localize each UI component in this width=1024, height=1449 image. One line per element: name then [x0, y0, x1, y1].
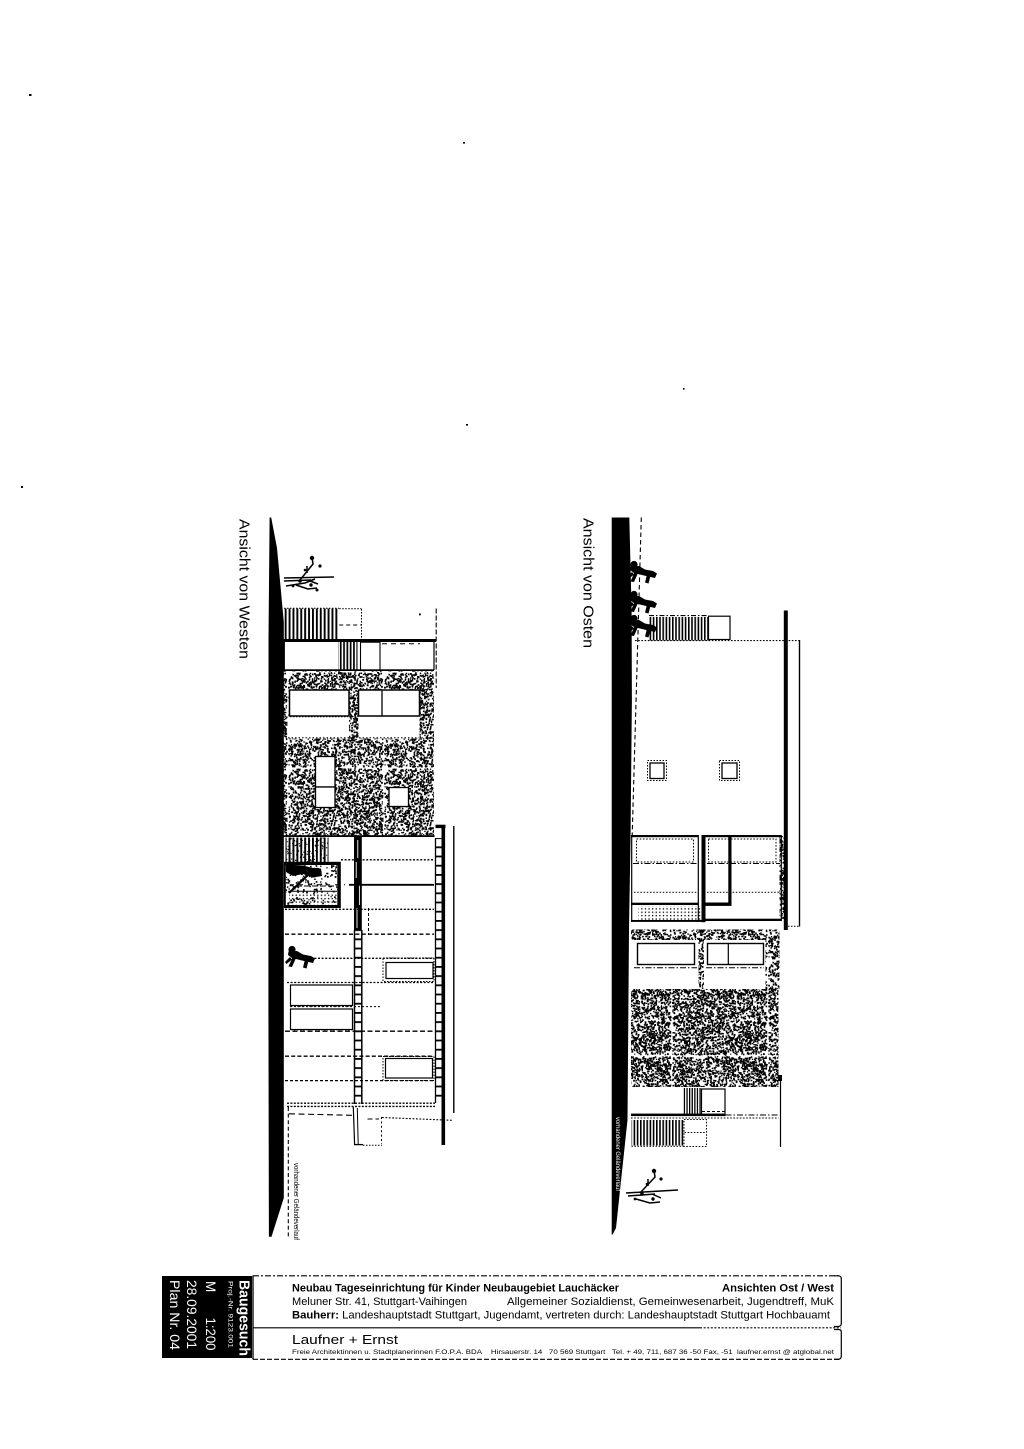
- svg-text:Proj.-Nr. 9123.001: Proj.-Nr. 9123.001: [227, 1281, 234, 1348]
- svg-text:Allgemeiner Sozialdienst, Geme: Allgemeiner Sozialdienst, Gemeinwesenarb…: [507, 1296, 834, 1308]
- svg-text:Meluner Str. 41, Stuttgart-Vai: Meluner Str. 41, Stuttgart-Vaihingen: [292, 1296, 467, 1308]
- svg-text:Ansichten Ost / West: Ansichten Ost / West: [722, 1283, 834, 1295]
- svg-text:vorhandener Geländeverlauf: vorhandener Geländeverlauf: [292, 1163, 299, 1240]
- svg-text:Plan Nr. 04: Plan Nr. 04: [167, 1280, 182, 1351]
- svg-text:Neubau Tageseinrichtung für Ki: Neubau Tageseinrichtung für Kinder Neuba…: [292, 1283, 619, 1295]
- svg-text:Baugesuch: Baugesuch: [235, 1280, 252, 1356]
- svg-text:28.09.2001: 28.09.2001: [184, 1280, 199, 1349]
- svg-text:Freie Architektinnen u. Stadtp: Freie Architektinnen u. Stadtplanerinnen…: [292, 1349, 834, 1356]
- svg-text:Ansicht von Osten: Ansicht von Osten: [580, 518, 597, 648]
- svg-text:Ansicht von Westen: Ansicht von Westen: [236, 519, 253, 659]
- svg-text:vorhandener Geländeverlauf: vorhandener Geländeverlauf: [614, 1117, 621, 1191]
- svg-text:M: M: [203, 1281, 218, 1292]
- svg-text:1:200: 1:200: [203, 1318, 218, 1351]
- svg-text:Laufner + Ernst: Laufner + Ernst: [292, 1333, 399, 1347]
- svg-text:Bauherr: Landeshauptstadt Stut: Bauherr: Landeshauptstadt Stuttgart, Jug…: [292, 1310, 830, 1322]
